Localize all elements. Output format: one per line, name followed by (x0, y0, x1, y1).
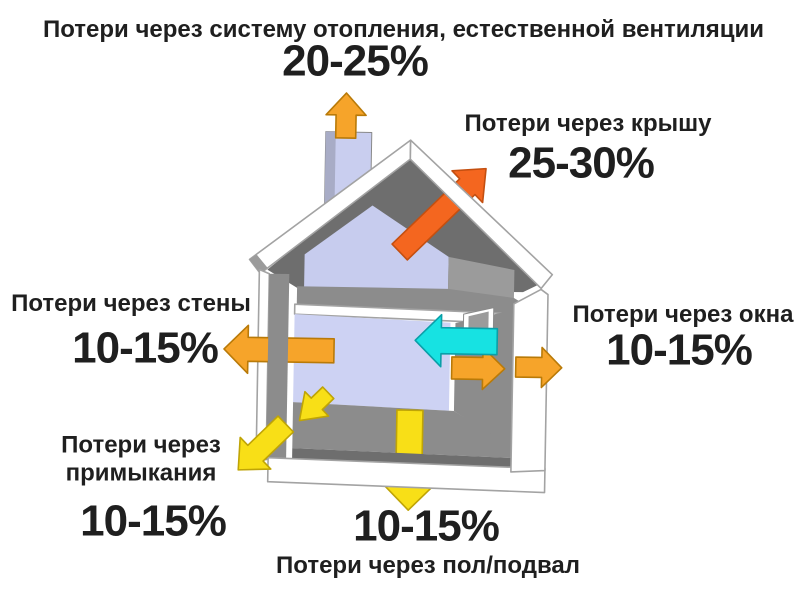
roof-value: 25-30% (508, 139, 654, 190)
floor-label: Потери через пол/подвал (276, 552, 580, 580)
junctions-value: 10-15% (80, 497, 226, 548)
roof-label: Потери через крышу (465, 110, 712, 138)
heat-loss-diagram: Потери через систему отопления, естестве… (0, 0, 807, 599)
heating-value: 20-25% (282, 37, 428, 88)
walls-label: Потери через стены (11, 290, 251, 318)
windows-value: 10-15% (606, 326, 752, 377)
windows-label: Потери через окна (573, 301, 794, 329)
floor-value: 10-15% (353, 502, 499, 553)
junctions-label: Потери через примыкания (61, 431, 221, 486)
walls-value: 10-15% (72, 324, 218, 375)
